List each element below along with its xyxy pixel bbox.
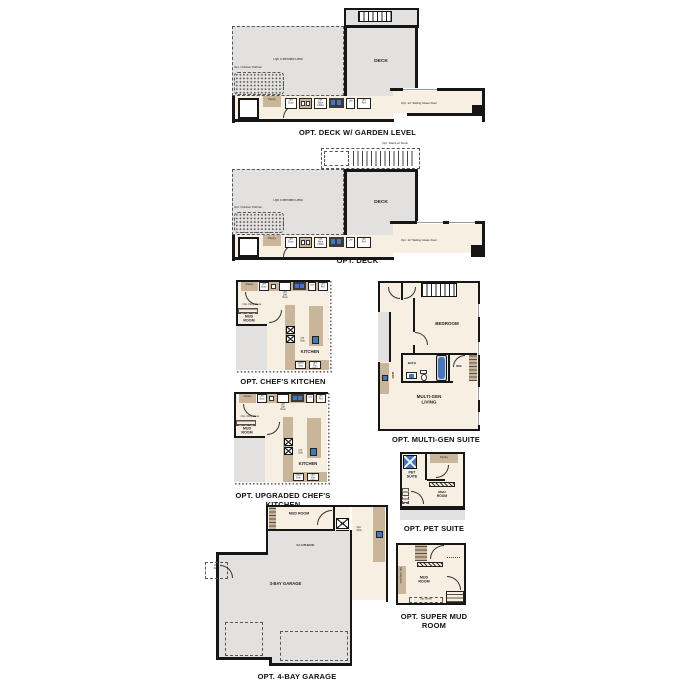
burner-icon bbox=[298, 396, 302, 401]
burner-icon bbox=[300, 284, 304, 289]
extended-deck-label: Opt. Extended Deck bbox=[257, 199, 319, 203]
dishwasher-label: DW bbox=[349, 239, 353, 242]
garage-side-area bbox=[378, 312, 389, 362]
super-sink-label: Super Sink bbox=[297, 362, 304, 367]
sink-icon bbox=[306, 101, 310, 106]
pantry-label: Pantry bbox=[244, 395, 252, 398]
opt-door-label: Opt. Door bbox=[261, 283, 267, 288]
wall bbox=[216, 552, 268, 555]
room-label-bedroom: BEDROOM bbox=[431, 322, 464, 327]
wall bbox=[425, 452, 427, 480]
drop-zone-label: Opt. Drop Zone bbox=[241, 415, 252, 418]
mud-room-bench bbox=[269, 507, 276, 530]
room-label-wic: WIC bbox=[455, 365, 463, 368]
stairs-icon bbox=[358, 11, 392, 22]
wine-chiller-label: Opt. Wine Chiller bbox=[317, 99, 325, 107]
wall-notch bbox=[472, 105, 485, 115]
wall bbox=[448, 353, 450, 383]
opt-sink-label: Opt. Sink bbox=[300, 337, 306, 342]
plan-cut-edge bbox=[329, 280, 332, 371]
dishwasher-label: DW bbox=[308, 396, 311, 399]
room-label-bath: BATH bbox=[408, 362, 416, 365]
refrigerator-label: Opt. Ref. bbox=[320, 283, 326, 288]
plan-title: OPT. SUPER MUD ROOM bbox=[393, 612, 475, 630]
wall bbox=[403, 381, 453, 383]
garage-side-area bbox=[234, 438, 265, 482]
wall bbox=[266, 505, 268, 531]
refrigerator-label: Opt. Ref. bbox=[360, 238, 367, 243]
room-label-mud-room: MUD ROOM bbox=[435, 491, 448, 498]
double-oven-icon bbox=[286, 335, 295, 343]
sink-icon bbox=[271, 284, 276, 289]
wall bbox=[266, 531, 268, 552]
garage-side-area bbox=[400, 510, 465, 520]
plan-opt-deck: Opt. Stairs w/ Deck Opt. Extended Deck D… bbox=[225, 142, 490, 268]
plan-title: OPT. CHEF'S KITCHEN bbox=[233, 377, 333, 386]
double-oven-box bbox=[277, 394, 289, 403]
pantry-label: Pantry bbox=[438, 456, 451, 459]
stairs-icon bbox=[421, 283, 457, 297]
bench-icon bbox=[429, 482, 455, 487]
plan-title: OPT. MULTI-GEN SUITE bbox=[377, 435, 495, 444]
room-label-mud-room: MUD ROOM bbox=[243, 315, 255, 323]
extended-deck-label: Opt. Extended Deck bbox=[257, 58, 319, 62]
sink-icon bbox=[301, 240, 305, 245]
bathtub-basin bbox=[438, 357, 445, 379]
room-label-kitchen: KITCHEN bbox=[298, 462, 319, 467]
burner-icon bbox=[337, 100, 341, 105]
garage-bay-outline bbox=[225, 622, 263, 656]
plan-opt-4-bay-garage: MUD ROOM Opt. Sink STORAGE Opt. Door 3-B… bbox=[203, 504, 391, 680]
room-label-deck: DECK bbox=[351, 200, 410, 205]
dishwasher-label: DW bbox=[349, 100, 353, 103]
burner-icon bbox=[331, 100, 335, 105]
room-label-pet-suite: PET SUITE bbox=[405, 471, 418, 479]
outdoor-kitchen-area bbox=[234, 72, 284, 95]
double-oven-icon bbox=[284, 438, 293, 446]
plan-cut-edge bbox=[327, 392, 330, 483]
garden-level-room bbox=[238, 237, 259, 257]
room-label-mud-room: MUD ROOM bbox=[288, 512, 310, 516]
wall bbox=[350, 530, 352, 666]
outdoor-kitchen-label: Opt. Outdoor Kitchen bbox=[234, 206, 262, 209]
burner-icon bbox=[293, 396, 297, 401]
outdoor-kitchen-area bbox=[234, 212, 284, 233]
plan-cut-edge bbox=[234, 482, 330, 485]
opt-door-label: Opt. Door bbox=[259, 395, 265, 400]
wall bbox=[401, 353, 403, 383]
wall bbox=[232, 119, 394, 122]
sink-icon bbox=[301, 101, 305, 106]
plan-opt-upgraded-chefs-kitchen: Pantry Opt. Door Opt. Dbl Oven DW Opt. R… bbox=[231, 392, 335, 500]
toilet-icon bbox=[421, 374, 427, 381]
room-label-bar: BAR bbox=[391, 372, 394, 379]
bench-icon bbox=[417, 562, 443, 567]
wall bbox=[386, 505, 388, 602]
sink-icon bbox=[409, 374, 414, 378]
dog-wash-icon bbox=[403, 455, 417, 469]
room-label-deck: DECK bbox=[351, 59, 410, 64]
window bbox=[477, 387, 481, 400]
opt-drop-zone-area bbox=[238, 308, 258, 314]
locker-cubby bbox=[402, 488, 409, 504]
plan-title: OPT. DECK bbox=[225, 256, 490, 265]
plan-title: OPT. 4-BAY GARAGE bbox=[203, 672, 391, 681]
pot-filler-label: Opt. Pot Filler bbox=[309, 474, 317, 482]
window bbox=[477, 342, 481, 355]
wall bbox=[427, 479, 445, 481]
window bbox=[477, 304, 481, 317]
plan-opt-deck-garden-level: DECK Opt. Extended Deck Opt. Outdoor Kit… bbox=[225, 6, 490, 140]
opt-door-label: Opt. Door bbox=[288, 99, 294, 104]
bar-sink-icon bbox=[382, 375, 388, 381]
stair-landing-dashed bbox=[324, 151, 349, 166]
sink-icon bbox=[376, 531, 383, 538]
room-label-multi-gen-living: MULTI-GEN LIVING bbox=[410, 395, 448, 405]
opt-sink-label: Opt. Sink bbox=[356, 526, 362, 532]
double-oven-icon bbox=[284, 447, 293, 455]
window bbox=[417, 221, 443, 224]
wine-chiller-label: Opt. Wine Chiller bbox=[317, 238, 325, 246]
wall bbox=[389, 312, 391, 362]
stairs-icon bbox=[353, 151, 416, 166]
burner-icon bbox=[331, 239, 335, 244]
pantry-label: Pantry bbox=[268, 237, 276, 240]
room-label-3-bay-garage: 3-BAY GARAGE bbox=[266, 582, 305, 587]
room-label-storage: STORAGE bbox=[293, 544, 318, 548]
closet-shelving bbox=[446, 591, 464, 603]
room-label-mud-room: MUD ROOM bbox=[241, 427, 253, 435]
plan-opt-multi-gen-suite: BEDROOM BATH WIC MULTI-GEN LIVING BAR OP… bbox=[377, 280, 495, 446]
garden-level-room bbox=[238, 98, 259, 119]
sink-icon bbox=[269, 396, 274, 401]
wall bbox=[236, 280, 238, 325]
room-label-kitchen: KITCHEN bbox=[300, 350, 321, 355]
super-sink-label: Super Sink bbox=[295, 474, 302, 479]
sliding-door-label: Opt. 12' Sliding Glass Door bbox=[401, 239, 437, 242]
opt-bench-label: Opt. Bench bbox=[419, 598, 433, 601]
sink-icon bbox=[306, 240, 310, 245]
kitchen-counter bbox=[285, 360, 329, 370]
double-oven-box bbox=[279, 282, 291, 291]
outdoor-kitchen-label: Opt. Outdoor Kitchen bbox=[234, 66, 262, 69]
double-oven-icon bbox=[286, 326, 295, 334]
window bbox=[477, 412, 481, 425]
refrigerator-label: Opt. Ref. bbox=[360, 99, 367, 104]
opt-stairs-label: Opt. Stairs w/ Deck bbox=[375, 142, 415, 145]
burner-icon bbox=[295, 284, 299, 289]
plan-title: OPT. PET SUITE bbox=[398, 524, 470, 533]
closet-shelving bbox=[469, 355, 477, 381]
cabinet bbox=[415, 545, 427, 561]
wall bbox=[216, 657, 272, 660]
window bbox=[449, 221, 475, 224]
dining-room-floor bbox=[393, 223, 483, 253]
wall bbox=[269, 663, 352, 666]
plan-opt-pet-suite: PET SUITE Pantry MUD ROOM OPT. PET SUITE bbox=[398, 450, 470, 532]
plan-title: OPT. DECK W/ GARDEN LEVEL bbox=[225, 128, 490, 137]
burner-icon bbox=[337, 239, 341, 244]
island-sink-icon bbox=[312, 336, 319, 344]
garage-bay-outline bbox=[280, 631, 348, 661]
sliding-door-opening bbox=[403, 88, 437, 91]
opt-door-label: Opt. Door bbox=[288, 238, 294, 243]
opt-drop-zone-area bbox=[236, 420, 256, 426]
wall bbox=[401, 281, 403, 300]
drop-zone-label: Opt. Drop Zone bbox=[399, 567, 402, 584]
double-oven-label: Opt. Dbl Oven bbox=[281, 291, 289, 299]
wall bbox=[413, 298, 415, 332]
double-oven-label: Opt. Dbl Oven bbox=[279, 403, 287, 411]
plan-opt-chefs-kitchen: Pantry Opt. Door Opt. Dbl Oven DW Opt. R… bbox=[233, 280, 333, 388]
island-sink-icon bbox=[310, 448, 317, 456]
wall bbox=[234, 392, 236, 437]
plan-cut-edge bbox=[236, 370, 332, 373]
room-label-mud-room: MUD ROOM bbox=[416, 576, 432, 584]
refrigerator-label: Opt. Ref. bbox=[318, 395, 324, 400]
pantry-label: Pantry bbox=[246, 283, 254, 286]
pot-filler-label: Opt. Pot Filler bbox=[311, 362, 319, 370]
dishwasher-label: DW bbox=[310, 284, 313, 287]
kitchen-counter bbox=[283, 472, 327, 482]
garage-side-area bbox=[236, 326, 267, 370]
drop-zone-label: Opt. Drop Zone bbox=[243, 303, 254, 306]
storage-floor bbox=[268, 531, 350, 552]
sliding-door-label: Opt. 12' Sliding Glass Door bbox=[401, 102, 437, 105]
washer-icon bbox=[336, 518, 349, 529]
pantry-label: Pantry bbox=[268, 98, 276, 101]
plan-opt-super-mud-room: Opt. Drop Zone MUD ROOM Opt. Bench OPT. … bbox=[393, 540, 475, 620]
window bbox=[447, 557, 460, 558]
opt-sink-label: Opt. Sink bbox=[298, 449, 304, 454]
